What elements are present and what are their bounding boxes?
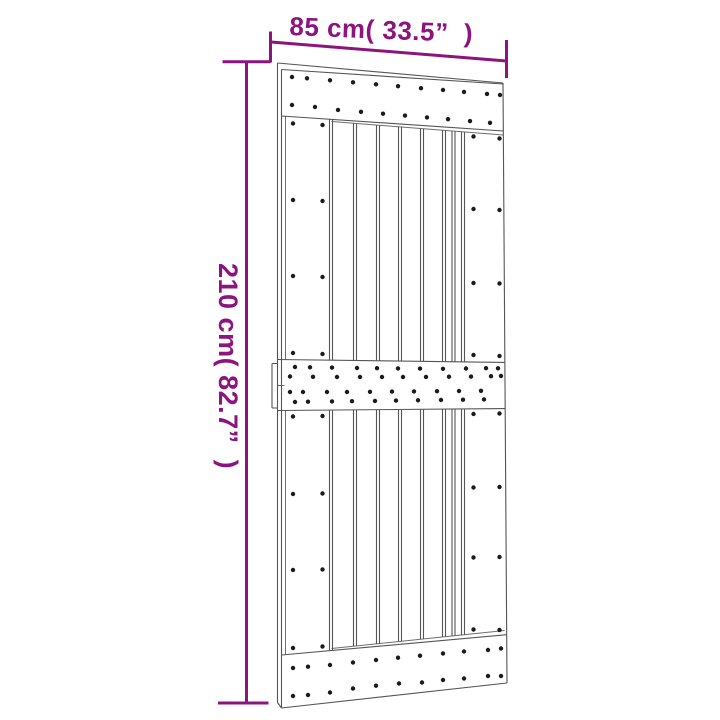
bottom-board-dots-row2 bbox=[293, 676, 501, 696]
bottom-board bbox=[282, 631, 507, 656]
left-stile bbox=[286, 116, 333, 654]
top-board-dots-row2 bbox=[292, 105, 490, 123]
middle-rail-dots-row4 bbox=[295, 399, 484, 402]
top-board bbox=[282, 116, 504, 135]
nail-dots bbox=[290, 77, 501, 696]
vertical-planks bbox=[354, 123, 456, 646]
lower-right-stile-dots bbox=[474, 414, 500, 631]
door-outline bbox=[278, 63, 508, 708]
lower-left-stile-dots bbox=[293, 416, 323, 648]
product-dimension-diagram: 85 cm( 33.5” ) 210 cm( 82.7” ) bbox=[0, 0, 720, 720]
middle-rail-dots-row1 bbox=[295, 367, 498, 369]
height-dimension-label: 210 cm( 82.7” ) bbox=[214, 263, 242, 469]
door-technical-drawing bbox=[0, 0, 720, 720]
middle-rail-dots-row2 bbox=[290, 376, 501, 377]
right-stile bbox=[462, 132, 465, 636]
upper-right-stile-dots bbox=[474, 137, 500, 357]
middle-rail-dots-row3 bbox=[290, 391, 481, 392]
upper-left-stile-dots bbox=[293, 124, 323, 355]
